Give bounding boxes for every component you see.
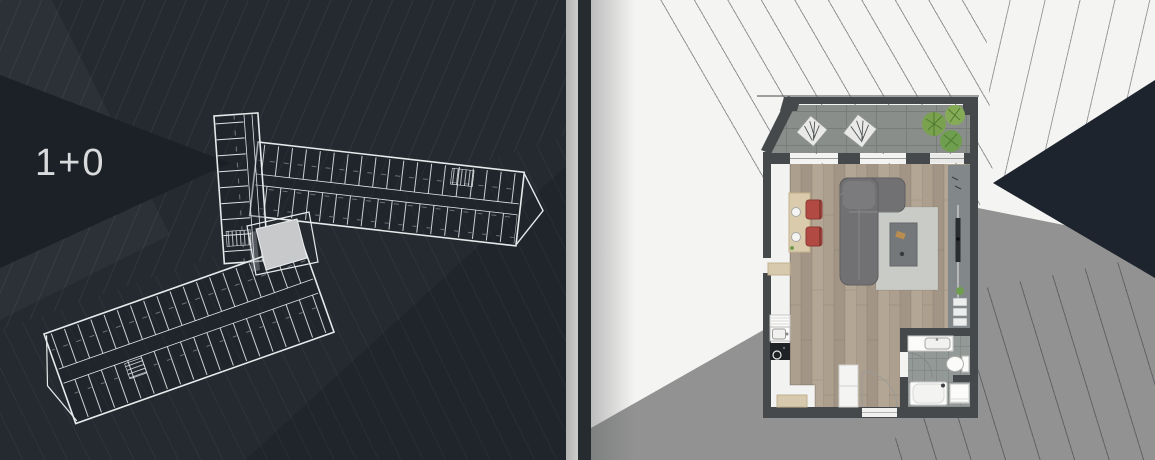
rug (876, 207, 938, 290)
building-storey-wireframe (0, 0, 578, 460)
bathroom (900, 328, 970, 418)
shelf-plant-icon (956, 287, 964, 295)
tv-unit (948, 165, 970, 333)
washer (950, 384, 969, 403)
floorplan-viewer: 1+0 (0, 0, 1155, 460)
coffee-table (890, 223, 917, 266)
toilet (947, 357, 964, 372)
divider-light-bar (566, 0, 578, 460)
divider-shadow (591, 0, 635, 460)
apartment-plan (757, 95, 984, 420)
divider-dark-bar (578, 0, 591, 460)
wing-lower (31, 243, 334, 429)
